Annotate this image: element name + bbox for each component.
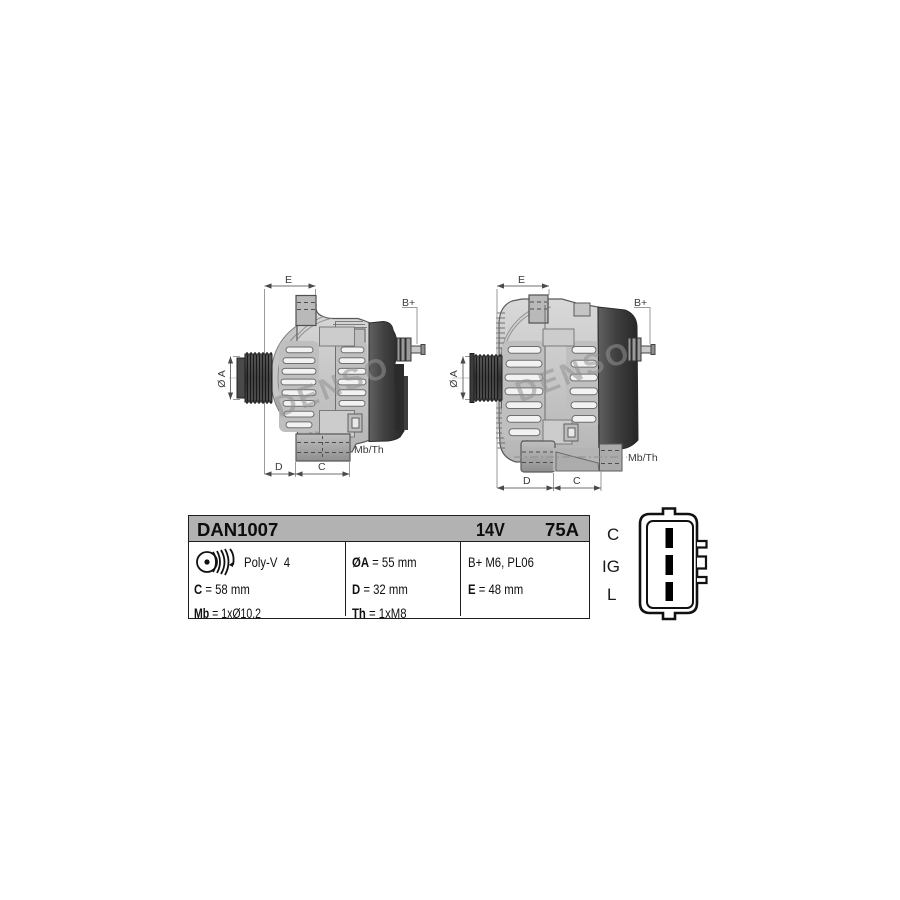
svg-text:Ø A: Ø A <box>216 370 228 388</box>
svg-text:C: C <box>607 525 619 544</box>
svg-text:D: D <box>523 475 531 487</box>
svg-text:D: D <box>275 461 283 473</box>
svg-text:C: C <box>318 461 326 473</box>
svg-text:Mb/Th: Mb/Th <box>628 452 658 464</box>
svg-text:C: C <box>573 475 581 487</box>
svg-text:L: L <box>607 585 616 604</box>
svg-text:Mb/Th: Mb/Th <box>354 444 384 456</box>
svg-text:Ø A: Ø A <box>448 370 460 388</box>
svg-text:E: E <box>285 274 292 286</box>
svg-text:E: E <box>518 274 525 286</box>
svg-text:IG: IG <box>602 557 620 576</box>
